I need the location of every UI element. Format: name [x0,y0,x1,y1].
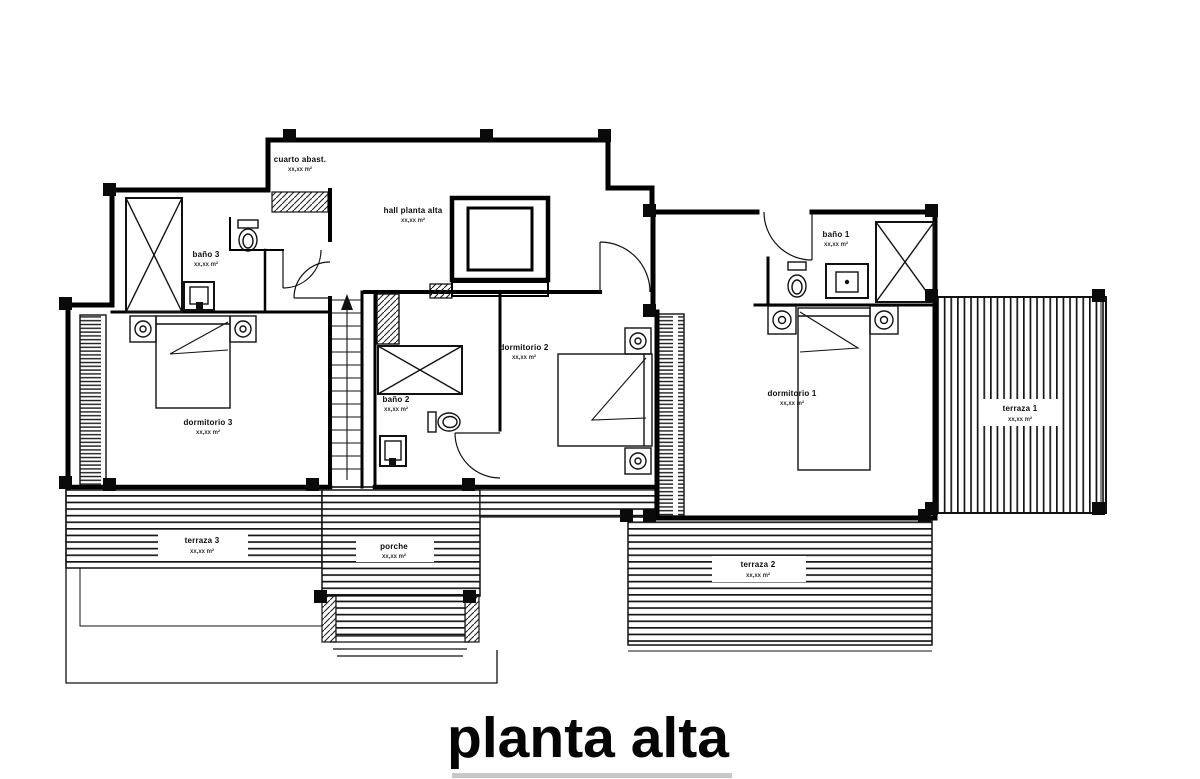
door-dormitorio3 [294,262,330,298]
room-name: terraza 2 [741,560,776,569]
cropped-caption-line [452,773,732,778]
stair-direction-arrow-icon [341,294,353,310]
sink-bano1-icon [826,264,868,298]
louver-strip-left [80,315,106,487]
bed-dormitorio1-icon [768,306,898,470]
room-name: baño 1 [823,230,850,239]
label-bano2: baño 2 xx,xx m² [383,395,410,413]
room-area: xx,xx m² [196,429,220,436]
skylight-shaft [430,198,548,298]
toilet-bano2-icon [428,412,460,432]
bed-dormitorio3-icon [130,316,256,408]
skylight-hatch [430,284,452,298]
room-name: dormitorio 1 [767,389,816,398]
stair-shelf [377,294,399,344]
label-hall: hall planta alta xx,xx m² [384,206,443,224]
sink-bano3-icon [184,282,214,310]
wardrobe-icon [126,198,182,312]
room-name: cuarto abast. [274,155,326,164]
porch-steps-deck [336,596,465,636]
louver-strip-middle [658,314,684,516]
room-area: xx,xx m² [401,217,425,224]
shower-bano2-icon [378,346,462,394]
room-area: xx,xx m² [746,572,770,579]
room-area: xx,xx m² [194,261,218,268]
bed-dormitorio2-icon [558,328,652,474]
vent-hatch-cuarto [272,192,328,212]
room-area: xx,xx m² [1008,416,1032,423]
toilet-bano3-icon [238,220,258,251]
room-name: baño 3 [193,250,220,259]
sink-bano2-icon [380,436,406,466]
door-bano3 [283,250,321,288]
label-dormitorio2: dormitorio 2 xx,xx m² [499,343,548,361]
label-cuarto-abast: cuarto abast. xx,xx m² [274,155,326,173]
toilet-bano1-icon [788,262,806,297]
door-dormitorio2 [600,242,650,292]
wall-outer-top [112,140,757,212]
door-dormitorio1 [764,212,812,260]
room-name: terraza 1 [1003,404,1038,413]
room-name: terraza 3 [185,536,220,545]
room-area: xx,xx m² [288,166,312,173]
label-dormitorio3: dormitorio 3 xx,xx m² [183,418,232,436]
room-name: dormitorio 3 [183,418,232,427]
room-name: porche [380,542,408,551]
room-area: xx,xx m² [382,553,406,560]
room-area: xx,xx m² [384,406,408,413]
label-bano1: baño 1 xx,xx m² [823,230,850,248]
terraces [66,297,1106,683]
room-area: xx,xx m² [190,548,214,555]
label-dormitorio1: dormitorio 1 xx,xx m² [767,389,816,407]
room-name: dormitorio 2 [499,343,548,352]
label-bano3: baño 3 xx,xx m² [193,250,220,268]
floor-plan-drawing: cuarto abast. xx,xx m² hall planta alta … [0,0,1200,779]
room-name: baño 2 [383,395,410,404]
page-title: planta alta [447,706,730,770]
room-area: xx,xx m² [824,241,848,248]
furniture [126,198,934,474]
garden-edge-outline [80,568,322,626]
floor-plan-canvas: cuarto abast. xx,xx m² hall planta alta … [0,0,1200,779]
room-name: hall planta alta [384,206,443,215]
door-bano2 [455,433,500,478]
room-area: xx,xx m² [512,354,536,361]
room-area: xx,xx m² [780,400,804,407]
